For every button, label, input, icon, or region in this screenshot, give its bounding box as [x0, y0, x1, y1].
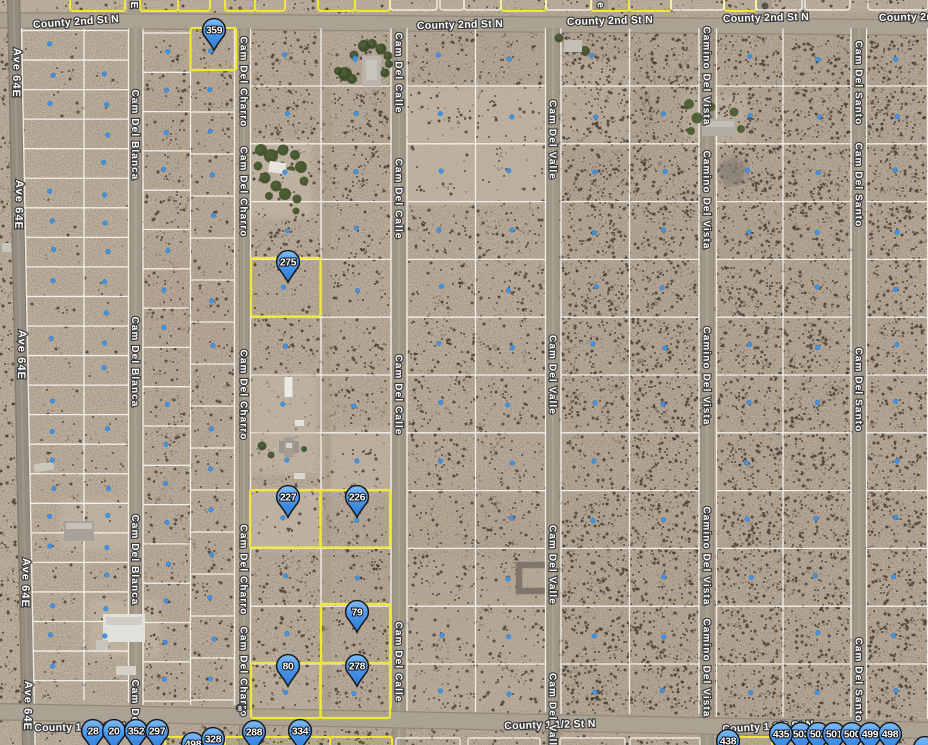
svg-text:County 2nd St N: County 2nd St N	[723, 11, 809, 25]
svg-text:79: 79	[352, 608, 363, 619]
svg-text:Ave 64E: Ave 64E	[15, 330, 28, 380]
svg-text:Cam Del Charro: Cam Del Charro	[238, 147, 249, 238]
svg-text:28: 28	[88, 727, 99, 738]
svg-text:Cam Del Charro: Cam Del Charro	[238, 525, 249, 616]
svg-text:e: e	[595, 2, 606, 8]
svg-text:438: 438	[720, 737, 737, 745]
svg-text:Ave 64E: Ave 64E	[10, 48, 23, 98]
svg-text:Cam Del Valle: Cam Del Valle	[547, 335, 558, 415]
svg-text:352: 352	[128, 727, 145, 738]
svg-text:Cam Del Charro: Cam Del Charro	[238, 350, 249, 441]
svg-text:Cam Del Valle: Cam Del Valle	[547, 673, 558, 745]
svg-text:Cam Del Blanca: Cam Del Blanca	[129, 515, 140, 606]
svg-text:Cam Del Blanca: Cam Del Blanca	[129, 317, 140, 408]
svg-text:499: 499	[862, 730, 879, 741]
svg-text:Cam Del Santo: Cam Del Santo	[853, 143, 864, 228]
svg-text:County 2nd St N: County 2nd St N	[417, 18, 503, 32]
svg-text:Cam Del Valle: Cam Del Valle	[547, 525, 558, 605]
svg-text:Cam Del Santo: Cam Del Santo	[853, 41, 864, 126]
svg-text:334: 334	[292, 727, 309, 738]
svg-text:275: 275	[280, 258, 297, 269]
svg-text:Cam Del Calle: Cam Del Calle	[393, 622, 404, 703]
svg-text:Camino Del Vista: Camino Del Vista	[701, 26, 712, 125]
svg-text:288: 288	[246, 728, 263, 739]
svg-text:Cam Del Charro: Cam Del Charro	[238, 37, 249, 128]
svg-text:Cam Del Blanca: Cam Del Blanca	[129, 90, 140, 181]
svg-text:498: 498	[882, 730, 899, 741]
svg-text:Cam Del Santo: Cam Del Santo	[853, 638, 864, 723]
svg-text:Camino Del Vista: Camino Del Vista	[701, 506, 712, 605]
svg-text:Ave 64E: Ave 64E	[12, 180, 25, 230]
svg-text:328: 328	[205, 735, 222, 745]
svg-text:227: 227	[280, 493, 297, 504]
svg-text:226: 226	[349, 493, 366, 504]
svg-text:Ave 64E: Ave 64E	[21, 681, 34, 731]
svg-text:Camino Del Vista: Camino Del Vista	[701, 326, 712, 425]
svg-text:359: 359	[206, 26, 223, 37]
svg-text:Cam Del Calle: Cam Del Calle	[393, 355, 404, 436]
svg-text:435: 435	[773, 730, 790, 741]
svg-text:E: E	[128, 2, 139, 9]
svg-text:Cam Del Calle: Cam Del Calle	[393, 33, 404, 114]
svg-text:Camino Del Vista: Camino Del Vista	[701, 618, 712, 717]
svg-text:County 2n: County 2n	[879, 11, 928, 24]
svg-text:Cam Del Calle: Cam Del Calle	[393, 159, 404, 240]
svg-text:80: 80	[283, 662, 294, 673]
svg-text:498: 498	[185, 740, 202, 745]
svg-text:County 2nd St N: County 2nd St N	[567, 14, 653, 28]
svg-text:297: 297	[149, 727, 166, 738]
svg-text:8: 8	[238, 706, 242, 713]
svg-text:278: 278	[349, 662, 366, 673]
svg-text:Camino Del Vista: Camino Del Vista	[701, 150, 712, 249]
svg-text:Cam Del Valle: Cam Del Valle	[547, 100, 558, 180]
svg-text:20: 20	[109, 727, 120, 738]
svg-text:Ave 64E: Ave 64E	[19, 558, 32, 608]
svg-text:Cam Del Santo: Cam Del Santo	[853, 348, 864, 433]
